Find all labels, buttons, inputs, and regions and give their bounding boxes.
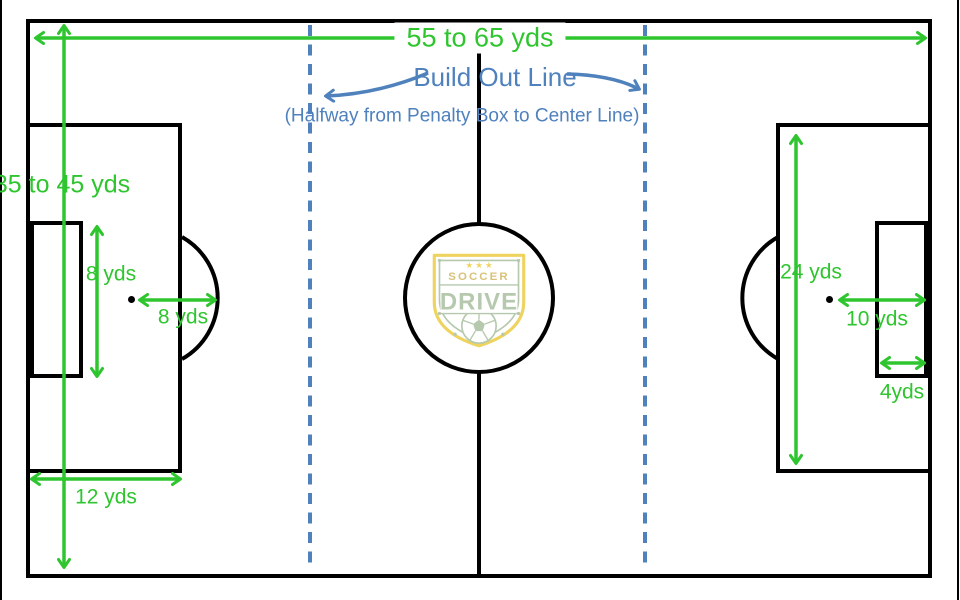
soccerdrive-logo: ★ ★ ★ SOCCER DRIVE — [427, 250, 531, 350]
logo-soccer-text: SOCCER — [448, 271, 509, 283]
right-penalty-spot — [826, 296, 833, 303]
right-goal-width-label: 4yds — [880, 382, 924, 403]
right-goal-box — [875, 221, 928, 378]
soccer-field-diagram: 55 to 65 yds 35 to 45 yds 8 yds 8 yds 12… — [0, 0, 960, 600]
logo-stars-icon: ★ ★ ★ — [466, 260, 493, 270]
logo-drive-text: DRIVE — [440, 288, 518, 315]
right-penalty-length-label: 24 yds — [780, 262, 842, 283]
left-goal-depth-label: 8 yds — [86, 264, 136, 285]
left-penalty-width-label: 12 yds — [75, 487, 137, 508]
build-out-title: Build Out Line — [413, 64, 576, 90]
page-border-left — [0, 0, 2, 600]
left-goal-box — [30, 221, 83, 378]
right-penalty-spot-label: 10 yds — [846, 309, 908, 330]
field-width-label: 35 to 45 yds — [0, 173, 130, 198]
build-out-subtitle: (Halfway from Penalty Box to Center Line… — [285, 107, 640, 126]
field-length-label: 55 to 65 yds — [394, 23, 565, 54]
left-penalty-spot — [128, 296, 135, 303]
page-border-right — [957, 0, 959, 600]
left-penalty-spot-label: 8 yds — [158, 307, 208, 328]
